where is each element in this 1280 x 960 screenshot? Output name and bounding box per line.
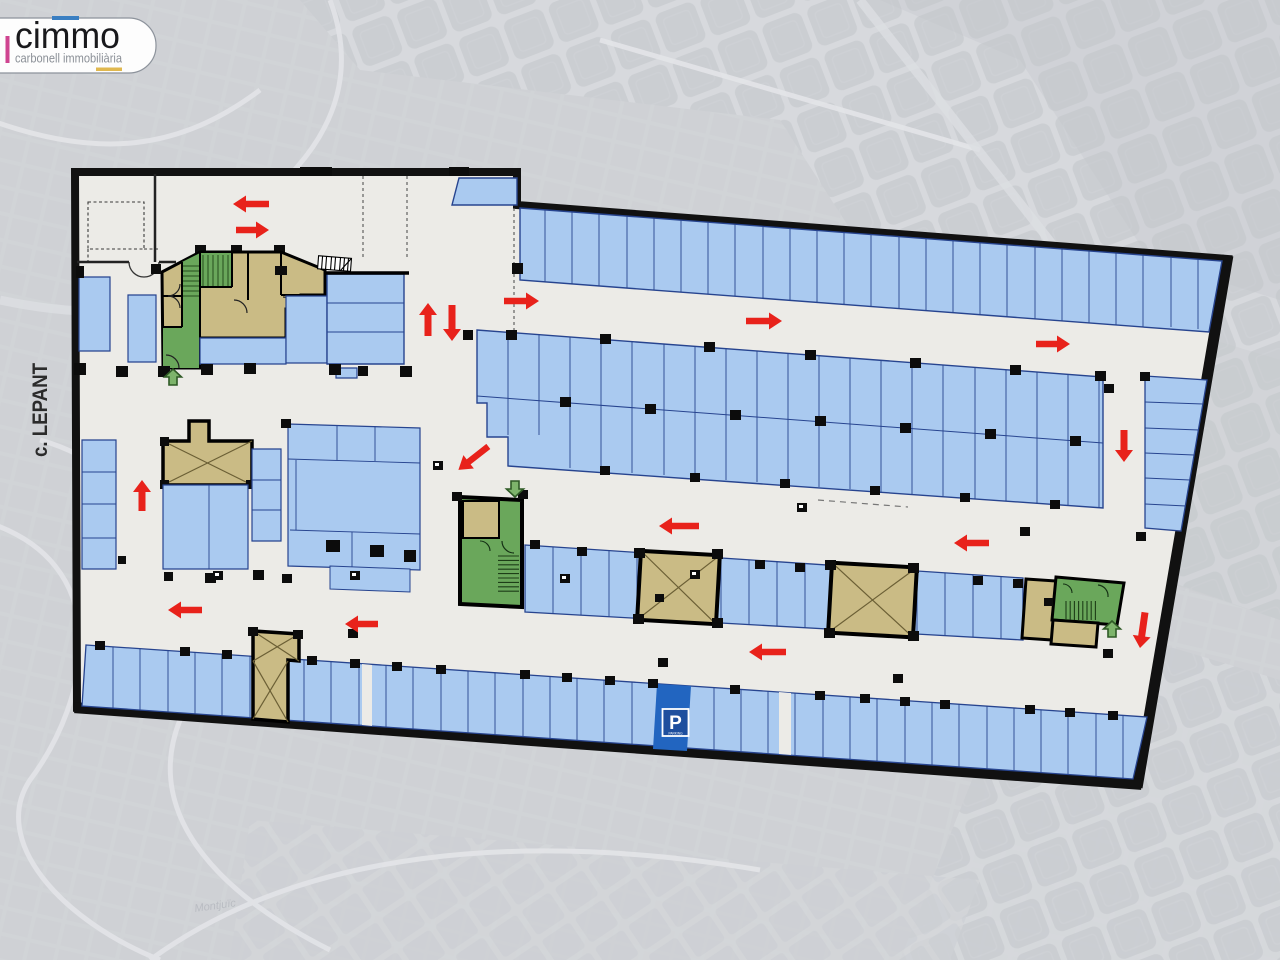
- svg-text:cimmo: cimmo: [15, 15, 120, 56]
- svg-text:c. LEPANT: c. LEPANT: [29, 363, 52, 457]
- svg-text:PARKING: PARKING: [668, 732, 683, 736]
- svg-text:carbonell immobiliària: carbonell immobiliària: [15, 52, 122, 66]
